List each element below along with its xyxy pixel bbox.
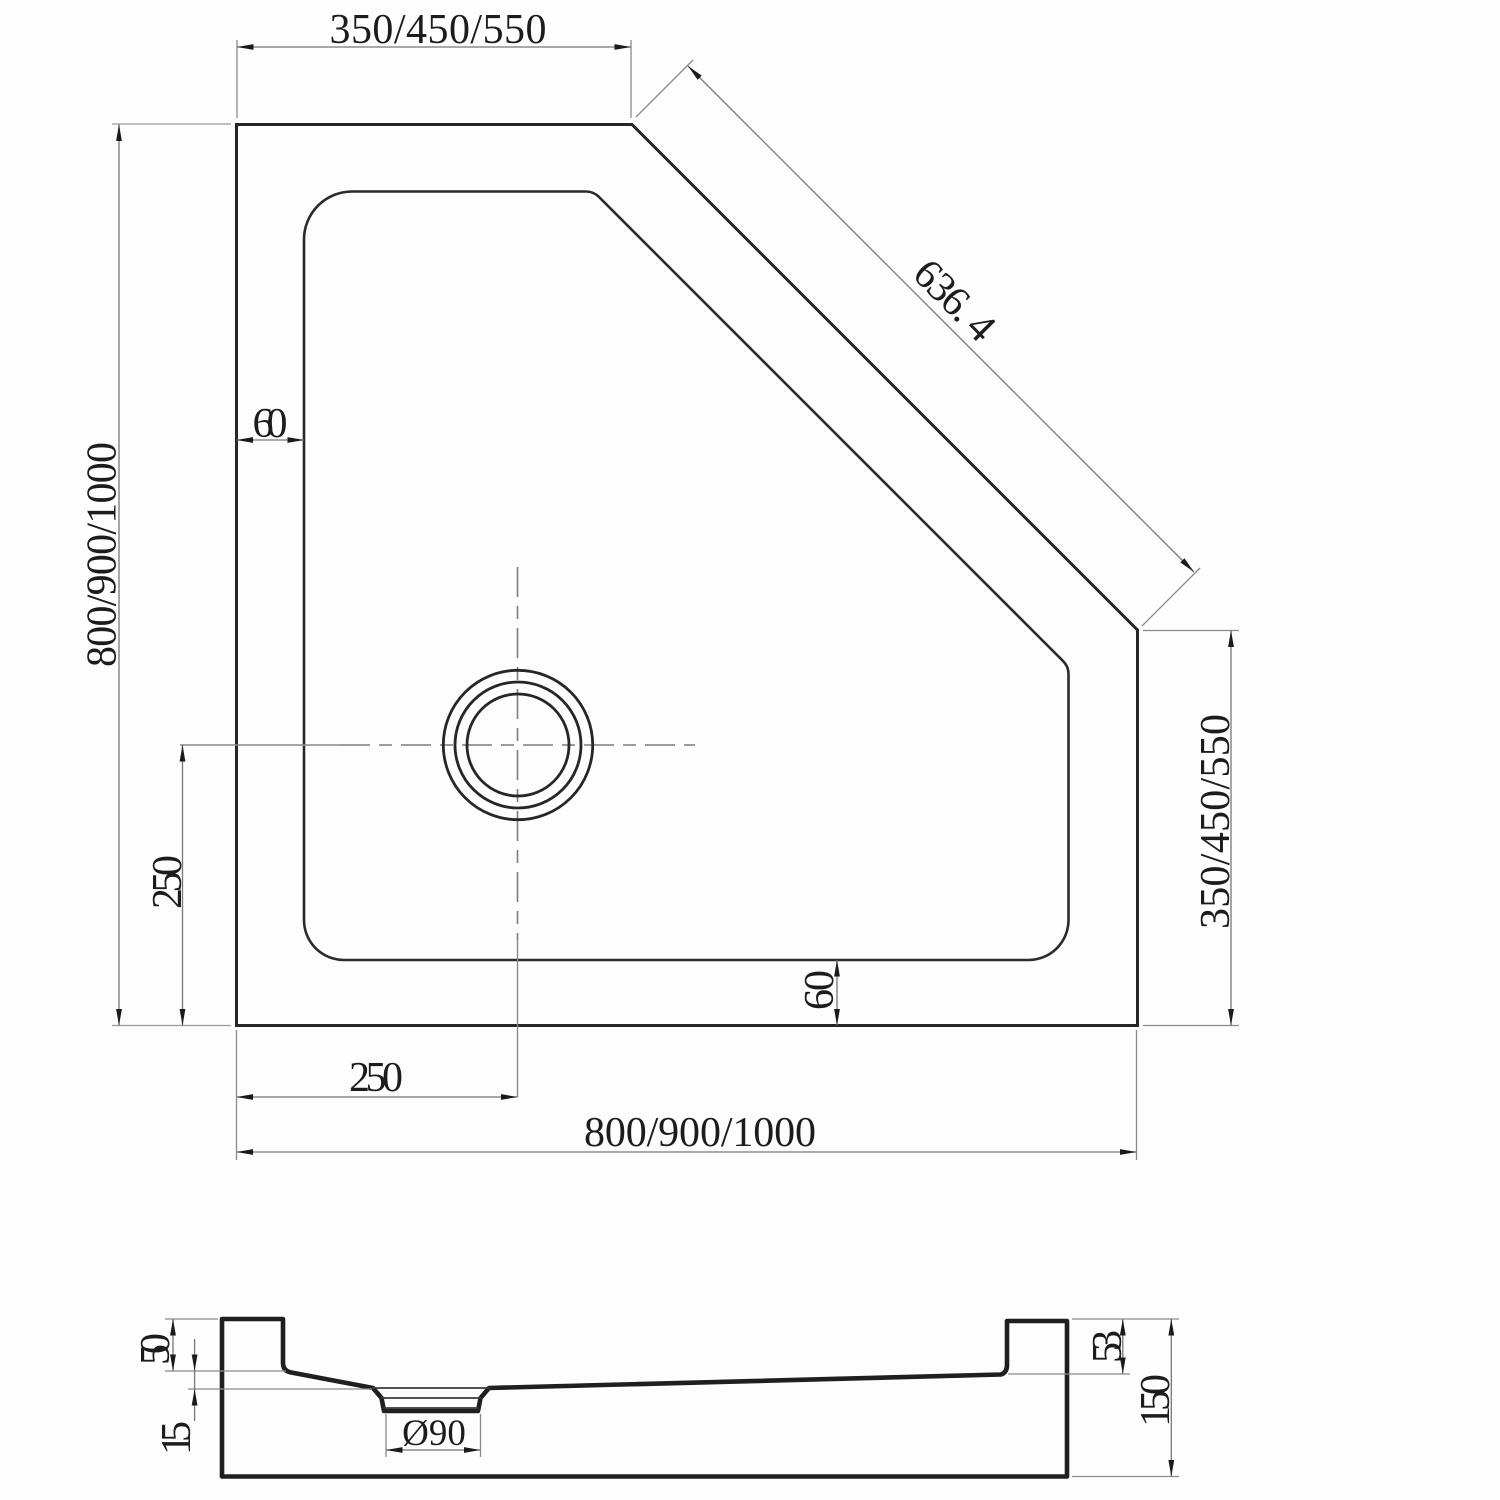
svg-text:15: 15 [154,1421,200,1455]
svg-text:150: 150 [1133,1374,1179,1427]
svg-text:60: 60 [797,970,843,1010]
svg-text:800/900/1000: 800/900/1000 [80,442,126,667]
svg-text:800/900/1000: 800/900/1000 [584,1110,816,1156]
svg-text:53: 53 [1085,1330,1131,1363]
svg-text:350/450/550: 350/450/550 [330,7,547,53]
svg-text:350/450/550: 350/450/550 [1193,714,1239,929]
svg-text:60: 60 [253,401,288,447]
svg-text:50: 50 [133,1333,179,1365]
svg-text:Ø90: Ø90 [402,1413,466,1454]
svg-text:250: 250 [145,855,191,909]
svg-text:250: 250 [349,1055,403,1101]
